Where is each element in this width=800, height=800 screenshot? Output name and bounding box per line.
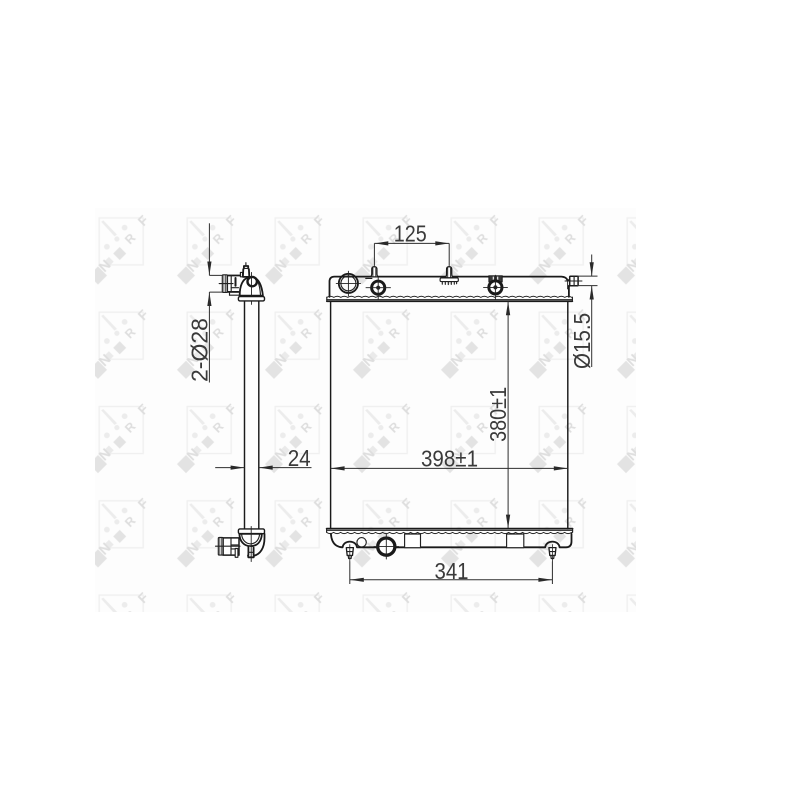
svg-text:2-Ø28: 2-Ø28 [187, 318, 213, 382]
svg-text:380±1: 380±1 [485, 387, 511, 442]
svg-text:Ø15.5: Ø15.5 [569, 313, 595, 369]
svg-text:398±1: 398±1 [421, 446, 478, 472]
svg-text:341: 341 [435, 558, 469, 584]
svg-text:125: 125 [394, 221, 427, 247]
svg-text:24: 24 [288, 445, 311, 471]
